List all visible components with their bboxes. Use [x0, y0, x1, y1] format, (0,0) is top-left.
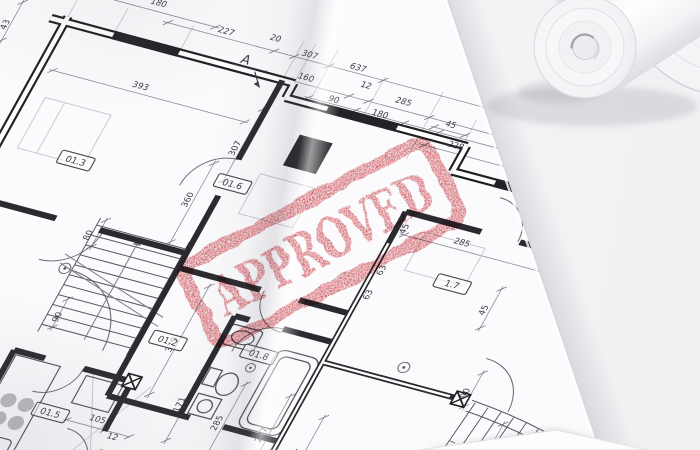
blueprint-photo-scene: A 180 227 20 307 637 160 12 285 90 180 4 [0, 0, 700, 450]
